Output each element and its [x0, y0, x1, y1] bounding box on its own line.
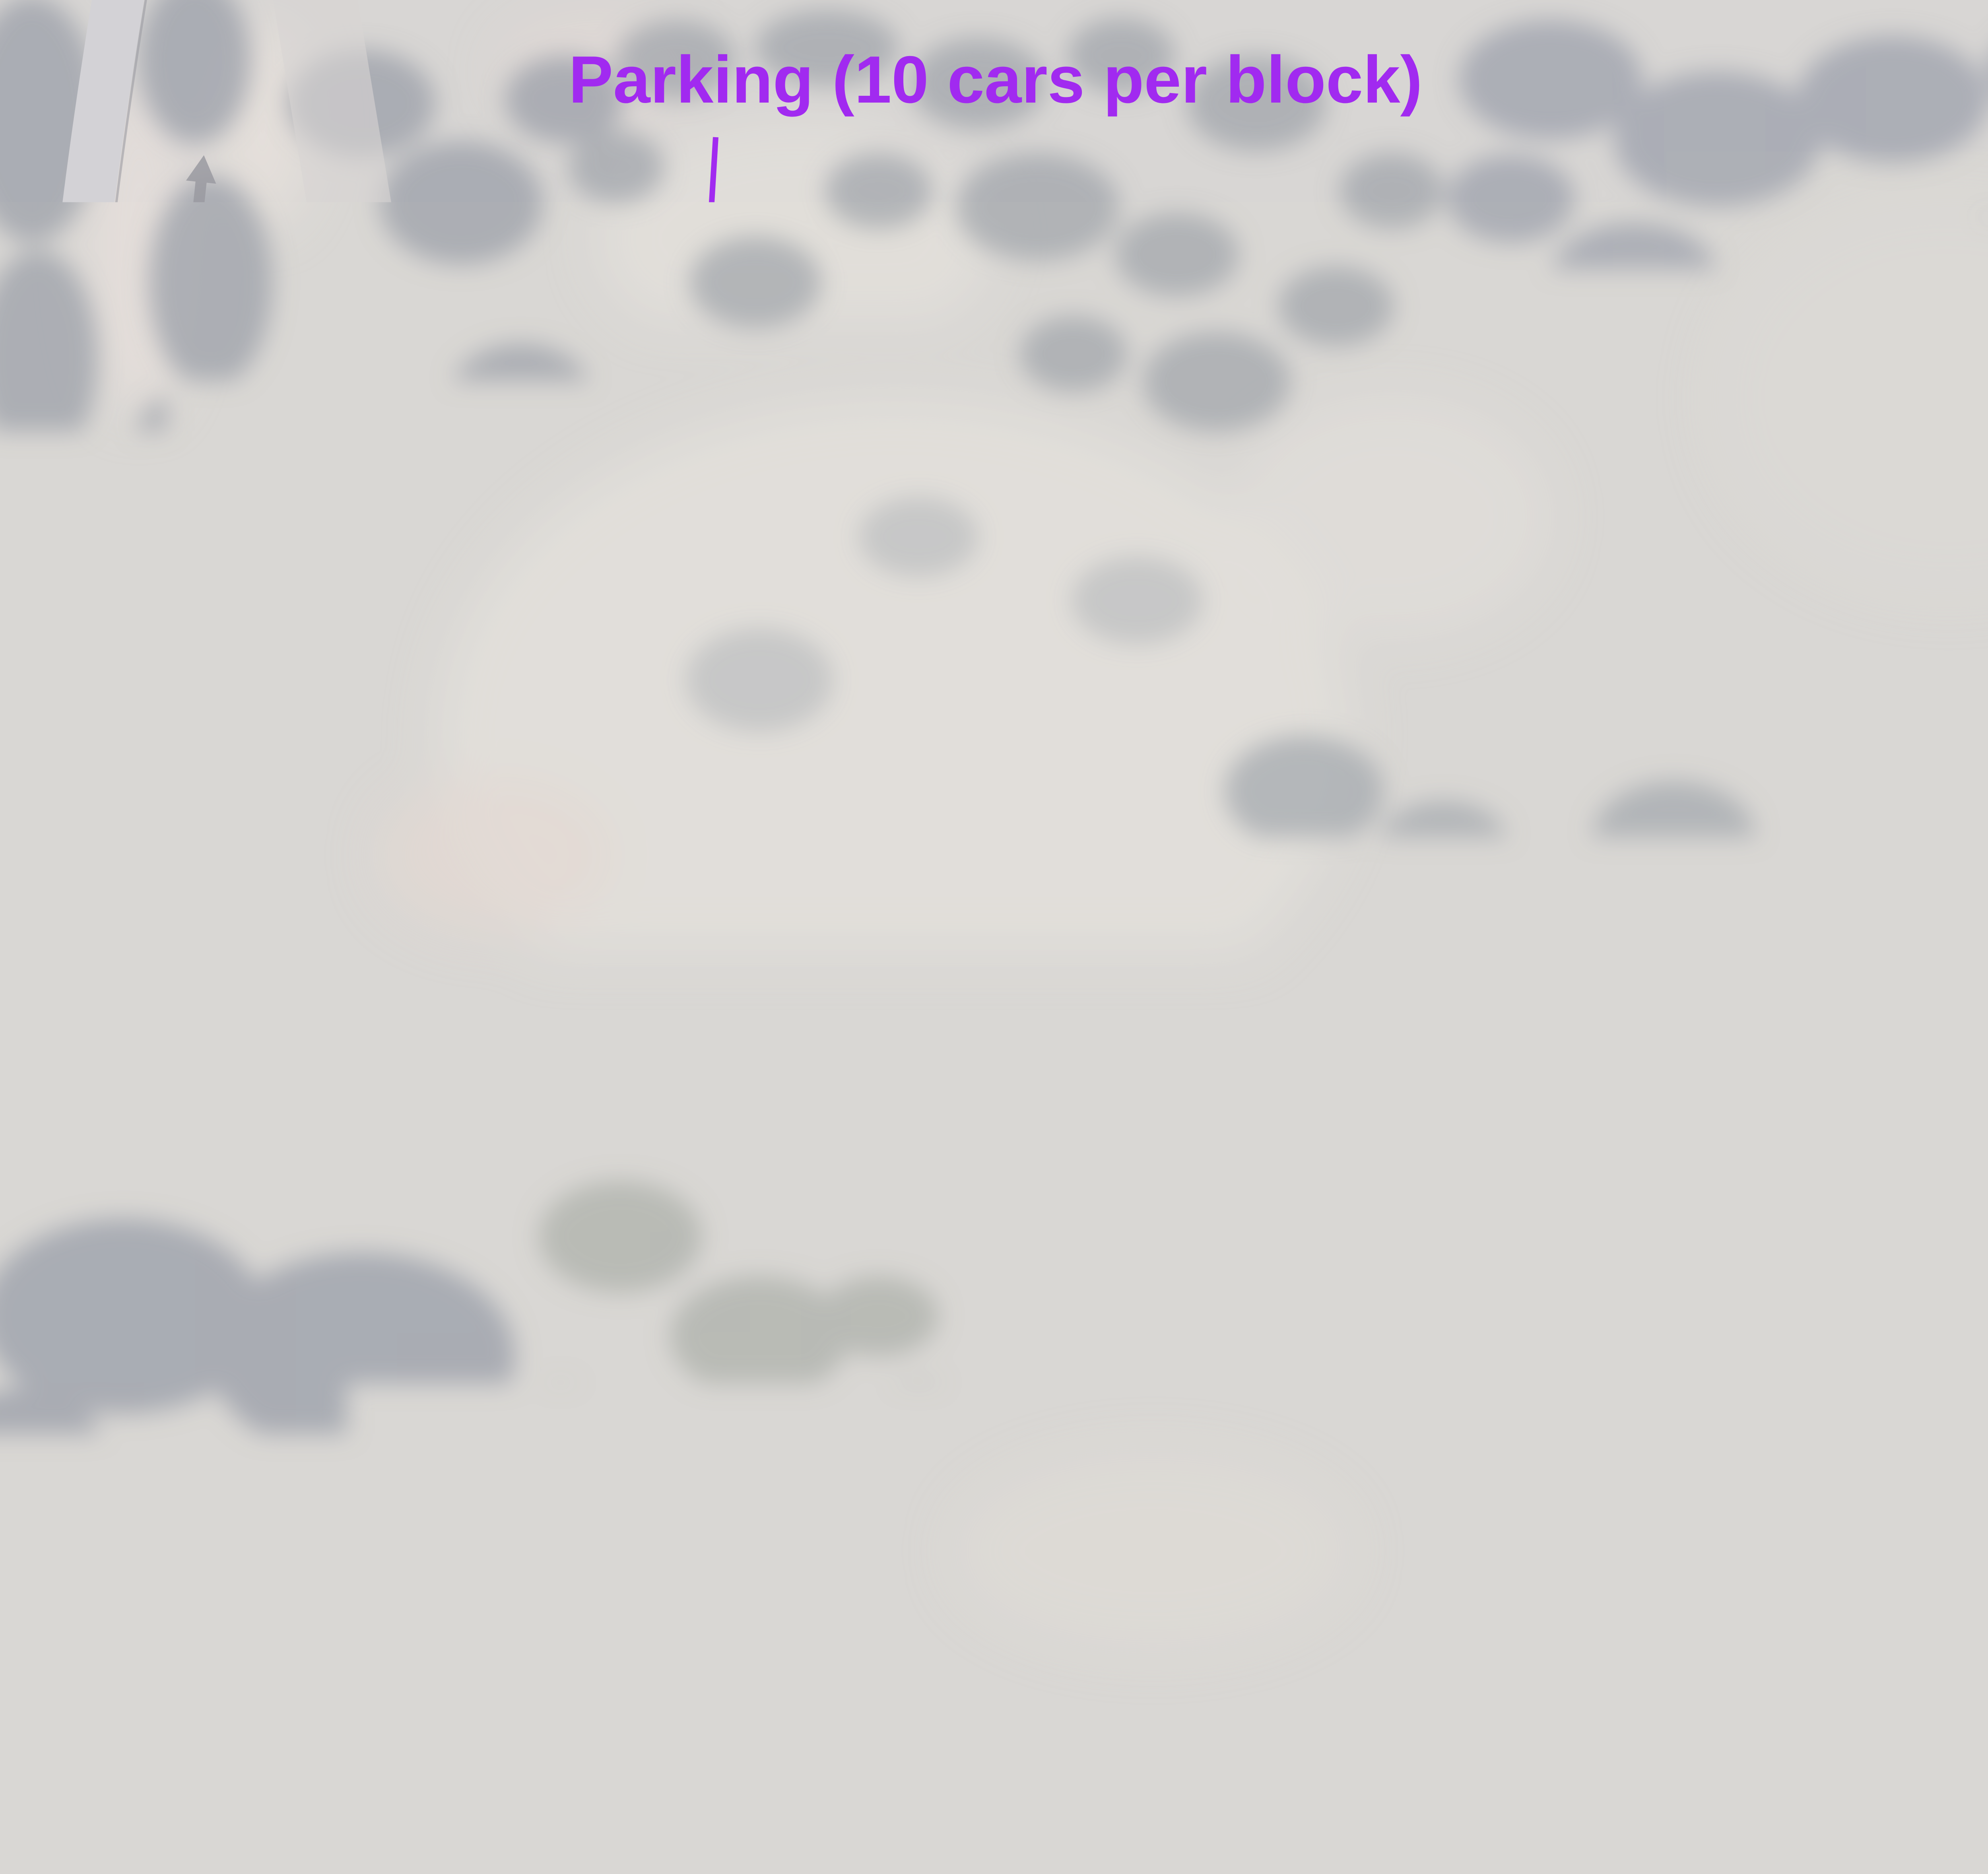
- rego-label: Rego/hire: [1548, 1154, 1856, 1229]
- downloads-label: Downloads: [667, 1219, 1023, 1294]
- event-map: Masterman St Masterman St Masterman St M…: [0, 0, 1988, 1874]
- start-label: Start: [1551, 1654, 1704, 1729]
- blue-lightning-label-b: Stall: [795, 1064, 936, 1139]
- commentator-label: Commentator: [1355, 1253, 1789, 1327]
- road-circle-junction: [96, 903, 158, 965]
- toilet-letter: T: [1066, 861, 1088, 902]
- yoga-label: Yoga: [1457, 709, 1616, 784]
- finish-label: Finish: [1068, 1380, 1265, 1455]
- parking-title: Parking (10 cars per block): [569, 42, 1423, 117]
- come-and-try-label: Come-and-try MTBO: [1554, 1036, 1988, 1111]
- kids-label: Kids': [1189, 635, 1349, 709]
- blue-lightning-label-a: Blue Ligtning: [376, 1064, 802, 1139]
- mojo-label: Mojo bike repairs: [1541, 791, 1988, 866]
- screens-label: Screens: [763, 1292, 1023, 1367]
- aerial-background: Masterman St Masterman St Masterman St M…: [0, 0, 1988, 1874]
